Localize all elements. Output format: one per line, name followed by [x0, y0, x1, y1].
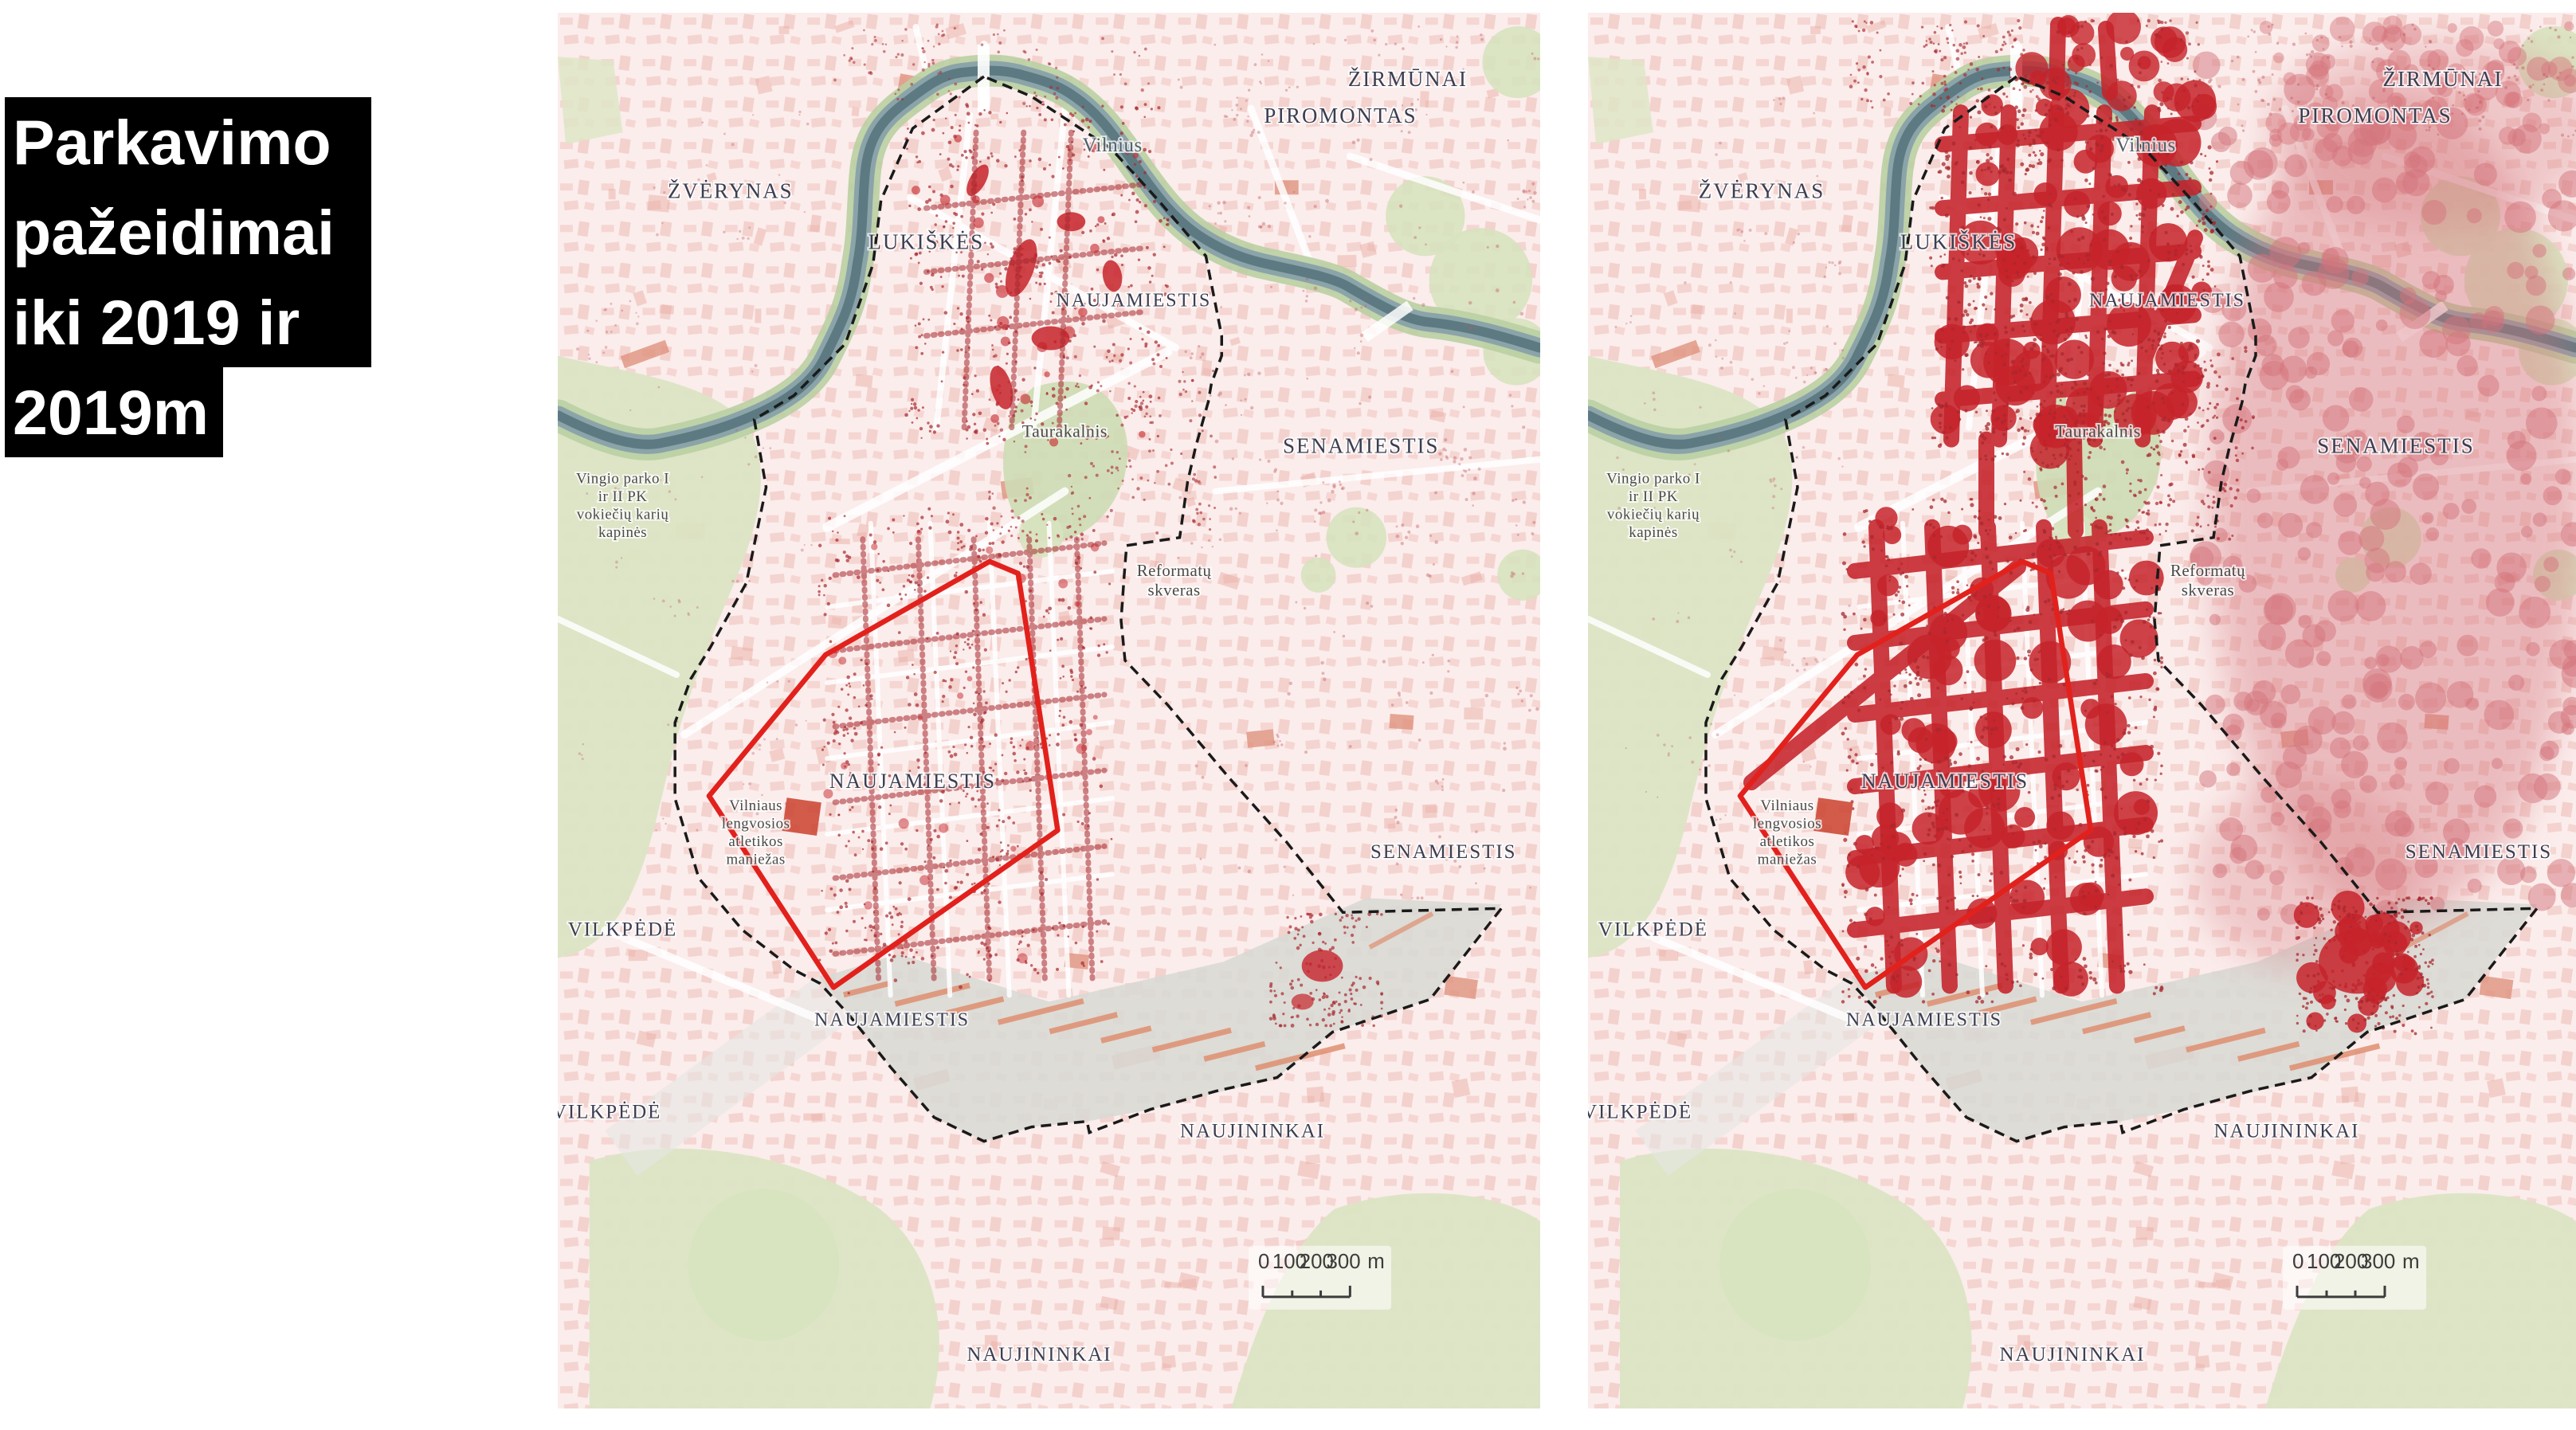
label-naujininkai-e: NAUJININKAI — [1180, 1121, 1325, 1142]
label-vilkpede-n: VILKPĖDĖ — [1598, 919, 1708, 940]
label-senamiestis-s: SENAMIESTIS — [2405, 841, 2552, 863]
map-parking-violations-until-2019: ŽIRMŪNAIPIROMONTASVilniusŽVĖRYNASLUKIŠKĖ… — [558, 13, 1540, 1408]
label-lukiskes: LUKIŠKĖS — [1900, 229, 2017, 253]
label-vilnius-river: Vilnius — [2115, 135, 2176, 156]
label-senamiestis-n: SENAMIESTIS — [2317, 434, 2474, 458]
map-svg: ŽIRMŪNAIPIROMONTASVilniusŽVĖRYNASLUKIŠKĖ… — [1588, 13, 2576, 1408]
label-vilkpede-s: VILKPĖDĖ — [558, 1102, 661, 1123]
label-lukiskes: LUKIŠKĖS — [868, 229, 985, 253]
label-zverynas: ŽVĖRYNAS — [668, 178, 794, 202]
title-block: Parkavimo pažeidimai iki 2019 ir 2019m — [5, 97, 371, 457]
title-line-2: pažeidimai — [5, 187, 371, 277]
label-vilkpede-n: VILKPĖDĖ — [568, 919, 677, 940]
label-naujamiestis-c: NAUJAMIESTIS — [829, 770, 996, 793]
title-line-4: 2019m — [5, 367, 223, 457]
label-senamiestis-s: SENAMIESTIS — [1370, 841, 1516, 863]
label-zirmunai: ŽIRMŪNAI — [2383, 67, 2503, 91]
label-naujininkai-s: NAUJININKAI — [1999, 1344, 2145, 1365]
basemap — [558, 13, 1540, 1408]
label-naujamiestis-n: NAUJAMIESTIS — [1056, 290, 1211, 311]
label-reformatu: Reformatųskveras — [1137, 561, 1212, 600]
label-zirmunai: ŽIRMŪNAI — [1348, 67, 1468, 91]
map-parking-violations-2019: ŽIRMŪNAIPIROMONTASVilniusŽVĖRYNASLUKIŠKĖ… — [1588, 13, 2576, 1408]
label-naujamiestis-s: NAUJAMIESTIS — [1846, 1009, 2002, 1030]
scale-bar: 0100200300m — [2283, 1246, 2426, 1310]
label-zverynas: ŽVĖRYNAS — [1699, 178, 1825, 202]
label-maniezas: Vilniauslengvosiosatletikosmaniežas — [1753, 797, 1821, 868]
map-svg: ŽIRMŪNAIPIROMONTASVilniusŽVĖRYNASLUKIŠKĖ… — [558, 13, 1540, 1408]
scale-bar: 0100200300m — [1249, 1246, 1391, 1310]
label-naujininkai-s: NAUJININKAI — [967, 1344, 1112, 1365]
label-naujamiestis-s: NAUJAMIESTIS — [814, 1009, 970, 1030]
label-reformatu: Reformatųskveras — [2170, 561, 2245, 600]
label-senamiestis-n: SENAMIESTIS — [1283, 434, 1439, 458]
title-line-3: iki 2019 ir — [5, 277, 371, 367]
label-naujamiestis-n: NAUJAMIESTIS — [2089, 290, 2245, 311]
label-piromontas: PIROMONTAS — [2298, 104, 2452, 127]
label-naujamiestis-c: NAUJAMIESTIS — [1861, 770, 2029, 793]
label-taurakalnis: Taurakalnis — [2055, 421, 2141, 441]
label-vilkpede-s: VILKPĖDĖ — [1588, 1102, 1692, 1123]
label-maniezas: Vilniauslengvosiosatletikosmaniežas — [722, 797, 790, 868]
label-vilnius-river: Vilnius — [1082, 135, 1142, 156]
figure-parking-violations-maps: Parkavimo pažeidimai iki 2019 ir 2019m Ž… — [0, 0, 2576, 1430]
label-piromontas: PIROMONTAS — [1264, 104, 1417, 127]
title-line-1: Parkavimo — [5, 97, 371, 187]
label-naujininkai-e: NAUJININKAI — [2213, 1121, 2359, 1142]
label-taurakalnis: Taurakalnis — [1022, 421, 1108, 441]
